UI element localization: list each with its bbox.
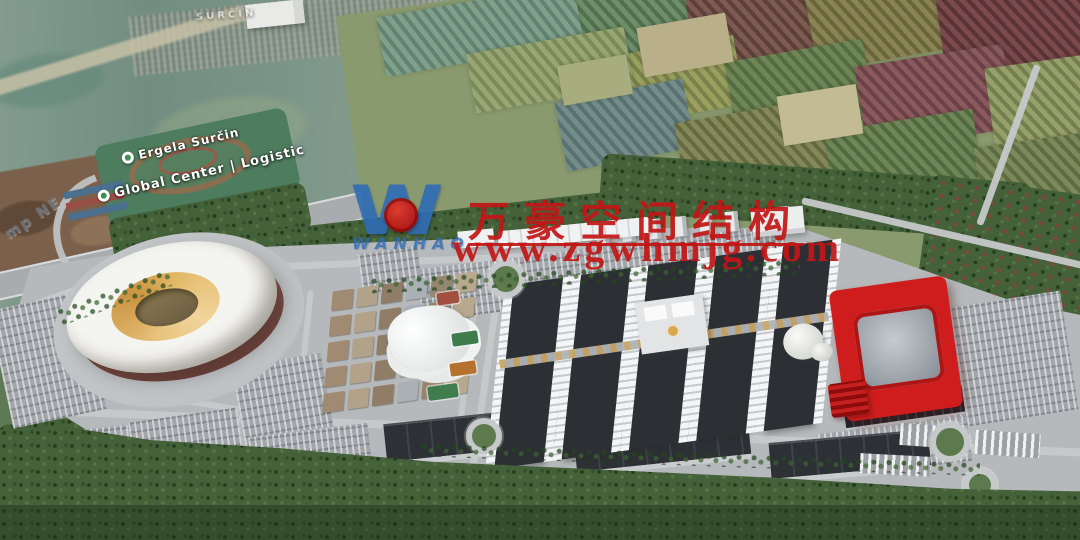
village-block	[354, 311, 376, 333]
village-block	[374, 358, 396, 380]
map-pin-icon	[121, 150, 135, 164]
pavilion-block	[643, 305, 667, 322]
white-tent-small	[810, 342, 834, 363]
exhibition-hall	[562, 268, 631, 459]
village-block	[329, 314, 351, 336]
village-block	[349, 362, 371, 384]
aerial-render-image: SURČIN Ergela Surčin Global Center | Log…	[0, 0, 1080, 540]
map-pin-icon	[97, 188, 111, 202]
village-block	[331, 289, 353, 311]
watermark-website-url: www.zgwhmjg.com	[452, 224, 843, 271]
village-block	[351, 336, 373, 358]
village-block	[372, 384, 394, 406]
village-block	[347, 387, 369, 409]
forest-shadow-edge	[0, 505, 1080, 540]
roundabout	[930, 422, 970, 462]
village-block	[396, 380, 418, 402]
village-block	[322, 391, 344, 413]
watermark-logo-red-disc-icon	[384, 198, 418, 232]
pavilion-block	[671, 301, 695, 318]
village-block	[327, 340, 349, 362]
gold-emblem	[667, 325, 678, 336]
central-pavilion	[635, 294, 710, 355]
red-annex-building	[827, 379, 869, 418]
exhibition-hall	[629, 259, 698, 450]
exhibition-hall	[494, 278, 563, 469]
arena-dome	[852, 303, 946, 392]
red-arena-complex	[773, 274, 973, 440]
bus-lot	[974, 430, 1041, 458]
